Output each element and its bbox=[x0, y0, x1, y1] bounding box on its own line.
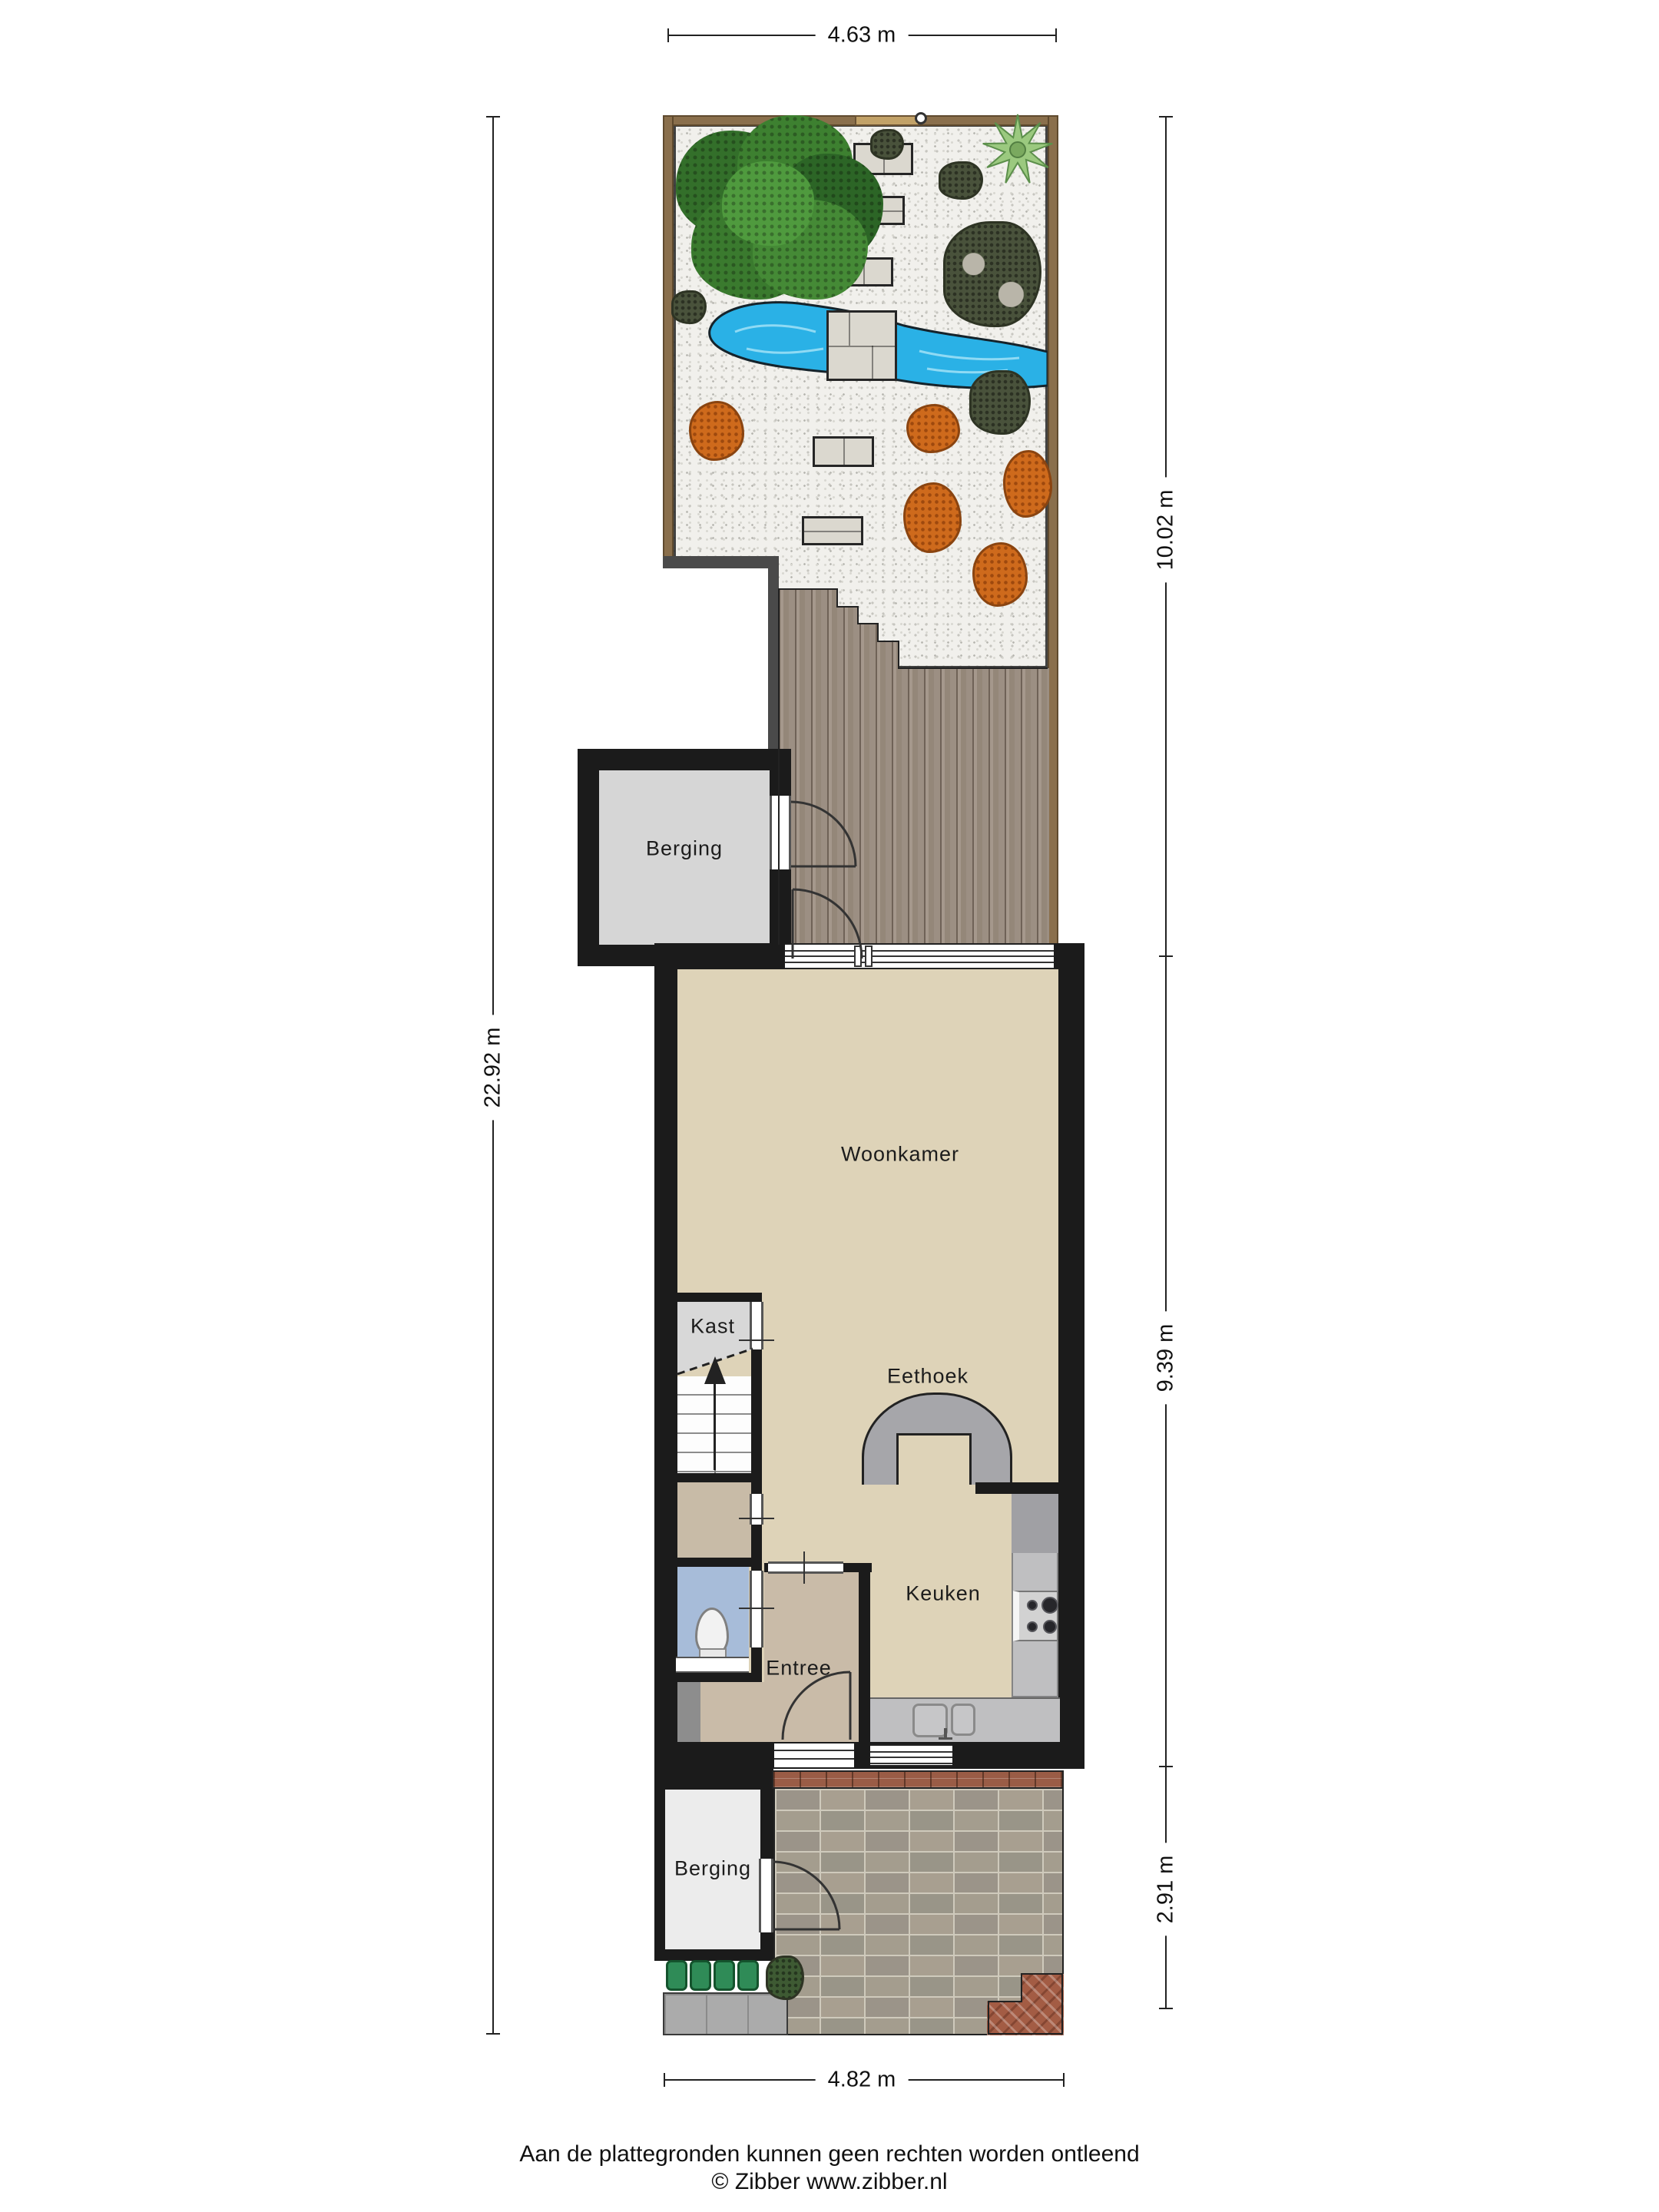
dark-shrub bbox=[939, 161, 983, 200]
room-label-woonkamer: Woonkamer bbox=[841, 1143, 959, 1167]
burner bbox=[1027, 1621, 1038, 1632]
kitchen-sink-basin bbox=[951, 1704, 975, 1736]
meter-closet-floor bbox=[677, 1682, 700, 1742]
footer-disclaimer: Aan de plattegronden kunnen geen rechten… bbox=[0, 2141, 1659, 2167]
stairs-direction-arrow bbox=[704, 1356, 726, 1384]
dim-tick bbox=[1159, 2008, 1173, 2009]
kast-door-frame bbox=[750, 1302, 763, 1349]
sliding-glass-door bbox=[785, 943, 1054, 969]
dim-label-bottom: 4.82 m bbox=[816, 2068, 909, 2093]
faucet-icon bbox=[939, 1737, 952, 1740]
house-wall-top-left bbox=[654, 943, 785, 969]
house-wall-top-right bbox=[1054, 943, 1084, 969]
stepping-stone bbox=[802, 516, 863, 545]
dim-tick bbox=[1159, 116, 1173, 118]
orange-shrub bbox=[1003, 450, 1052, 518]
cooktop bbox=[1013, 1591, 1058, 1641]
stepping-stone-bridge bbox=[826, 310, 897, 381]
dim-label-left: 22.92 m bbox=[481, 1015, 506, 1121]
room-label-berging-upper: Berging bbox=[646, 837, 723, 861]
orange-shrub bbox=[689, 401, 744, 461]
stairs-arrow-shaft bbox=[714, 1381, 716, 1470]
door-tick bbox=[739, 1608, 774, 1609]
garden-bench bbox=[666, 1960, 764, 1992]
sliding-door-mullion bbox=[865, 945, 873, 967]
dark-shrub bbox=[969, 370, 1031, 435]
orange-shrub bbox=[972, 542, 1028, 607]
burner bbox=[1043, 1620, 1057, 1634]
sliding-door-mullion bbox=[854, 945, 862, 967]
door-tick bbox=[739, 1339, 774, 1341]
patio-tiles bbox=[663, 1992, 788, 2035]
garden-fence-right bbox=[1048, 115, 1058, 955]
toilet-wall-bottom bbox=[676, 1673, 757, 1682]
dim-label-right-middle: 9.39 m bbox=[1154, 1312, 1179, 1405]
room-label-berging-lower: Berging bbox=[674, 1857, 751, 1881]
stepping-stone bbox=[813, 436, 874, 467]
toilet-door-frame bbox=[750, 1571, 763, 1647]
room-label-eethoek: Eethoek bbox=[887, 1365, 969, 1389]
house-wall-right bbox=[1058, 943, 1084, 1769]
dim-tick bbox=[486, 116, 500, 118]
kast-wall-top bbox=[676, 1293, 762, 1302]
retaining-wall bbox=[663, 556, 779, 568]
bench-seat bbox=[714, 1960, 735, 1991]
footer-credit: © Zibber www.zibber.nl bbox=[0, 2169, 1659, 2195]
large-tree bbox=[661, 115, 883, 307]
kitchen-wall-top bbox=[975, 1482, 1058, 1494]
orange-shrub bbox=[906, 404, 960, 453]
palm-center bbox=[1010, 142, 1025, 157]
bench-seat bbox=[737, 1960, 759, 1991]
house-wall-left bbox=[654, 943, 677, 1769]
palm-plant bbox=[982, 114, 1055, 187]
dim-label-right-top: 10.02 m bbox=[1154, 478, 1179, 583]
house-wall-bottom bbox=[654, 1742, 1084, 1769]
dim-tick bbox=[664, 2073, 665, 2087]
door-tick bbox=[739, 1518, 774, 1519]
patio-brick-strip bbox=[772, 1770, 1064, 1789]
burner bbox=[1027, 1600, 1038, 1611]
entree-window-frame bbox=[768, 1561, 843, 1574]
patio-shrub bbox=[766, 1955, 804, 2000]
dim-tick bbox=[1063, 2073, 1065, 2087]
kitchen-sink-basin bbox=[912, 1704, 948, 1737]
bench-seat bbox=[690, 1960, 711, 1991]
kitchen-window bbox=[870, 1744, 952, 1767]
entree-floor-extension bbox=[700, 1682, 764, 1742]
burner bbox=[1041, 1597, 1058, 1614]
hall-floor bbox=[677, 1482, 753, 1558]
toilet-sill bbox=[676, 1657, 749, 1673]
dim-tick bbox=[667, 28, 669, 42]
dim-label-right-bottom: 2.91 m bbox=[1154, 1843, 1179, 1936]
eethoek-arch-notch bbox=[896, 1433, 972, 1485]
floorplan-page: Berging Woonkamer Kast Eethoek Keuken En… bbox=[0, 0, 1659, 2212]
room-label-entree: Entree bbox=[766, 1657, 832, 1681]
berging-lower-door-frame bbox=[759, 1859, 773, 1932]
retaining-wall bbox=[768, 556, 779, 781]
hall-wall-bottom bbox=[676, 1558, 757, 1567]
berging-upper-door-frame bbox=[770, 796, 791, 869]
tree-canopy-blob bbox=[722, 161, 814, 246]
hall-door-frame bbox=[750, 1494, 763, 1525]
front-door-sill bbox=[774, 1743, 854, 1767]
dim-label-top: 4.63 m bbox=[816, 23, 909, 48]
dark-shrub-large bbox=[943, 221, 1041, 327]
window-tick bbox=[803, 1551, 805, 1584]
orange-shrub bbox=[903, 482, 962, 553]
gate-handle-icon bbox=[915, 112, 927, 124]
kitchen-cabinet-tall bbox=[1012, 1494, 1058, 1553]
entree-wall-right bbox=[859, 1572, 870, 1742]
dark-shrub bbox=[870, 129, 904, 160]
room-label-kast: Kast bbox=[690, 1315, 735, 1339]
room-label-keuken: Keuken bbox=[906, 1582, 981, 1606]
patio-paving bbox=[773, 1787, 1064, 2035]
dim-tick bbox=[486, 2033, 500, 2035]
bench-seat bbox=[666, 1960, 687, 1991]
dim-tick bbox=[1055, 28, 1057, 42]
dark-shrub bbox=[671, 290, 707, 324]
stairs-wall-bottom bbox=[676, 1473, 754, 1482]
